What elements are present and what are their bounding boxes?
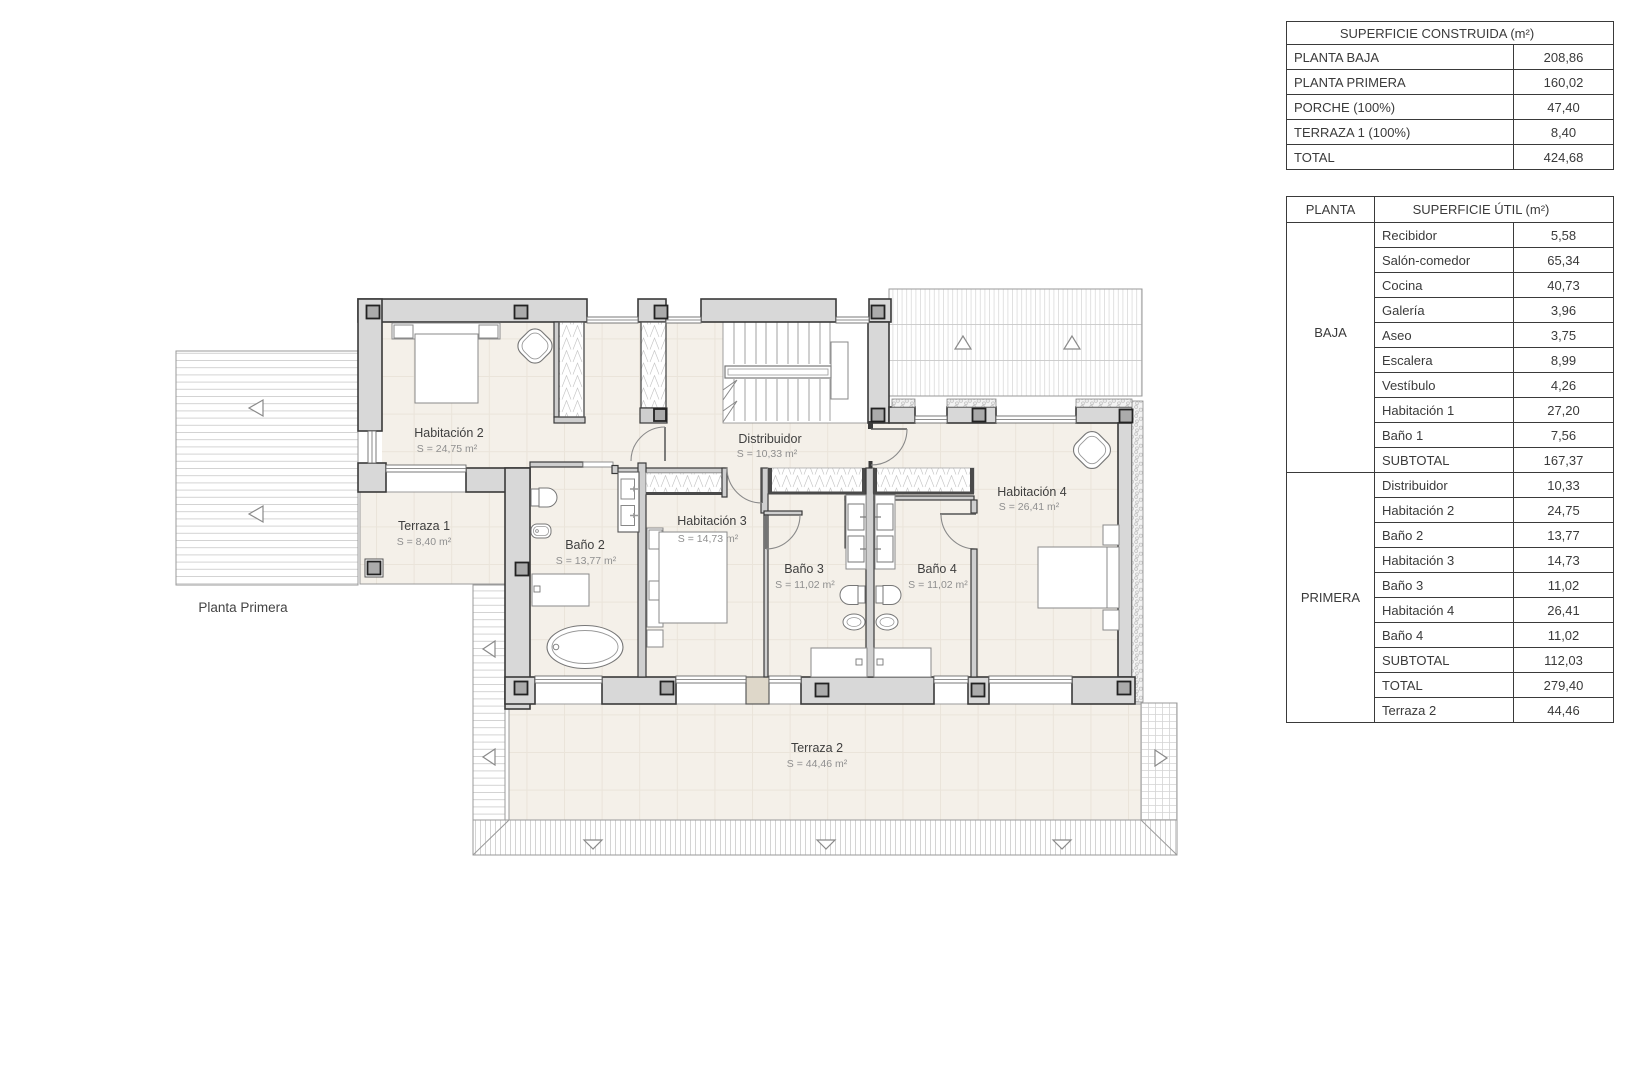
svg-text:S = 11,02 m²: S = 11,02 m² [775,579,835,591]
svg-text:Terraza 1: Terraza 1 [398,519,450,533]
svg-text:S = 13,77 m²: S = 13,77 m² [556,555,617,567]
svg-text:S = 8,40 m²: S = 8,40 m² [397,536,452,548]
svg-text:S = 10,33 m²: S = 10,33 m² [737,448,798,460]
svg-text:Distribuidor: Distribuidor [738,432,801,446]
svg-text:S = 44,46 m²: S = 44,46 m² [787,758,848,770]
svg-text:S = 14,73 m²: S = 14,73 m² [678,533,739,545]
svg-text:Habitación 2: Habitación 2 [414,426,484,440]
svg-text:Baño 3: Baño 3 [784,562,824,576]
svg-text:Terraza 2: Terraza 2 [791,741,843,755]
svg-text:Habitación 3: Habitación 3 [677,514,747,528]
svg-text:Planta Primera: Planta Primera [198,600,288,615]
svg-text:Baño 4: Baño 4 [917,562,957,576]
svg-text:Habitación 4: Habitación 4 [997,485,1067,499]
svg-text:S = 11,02 m²: S = 11,02 m² [908,579,968,591]
svg-text:Baño 2: Baño 2 [565,538,605,552]
svg-text:S = 26,41 m²: S = 26,41 m² [999,501,1060,513]
svg-text:S = 24,75 m²: S = 24,75 m² [417,443,478,455]
